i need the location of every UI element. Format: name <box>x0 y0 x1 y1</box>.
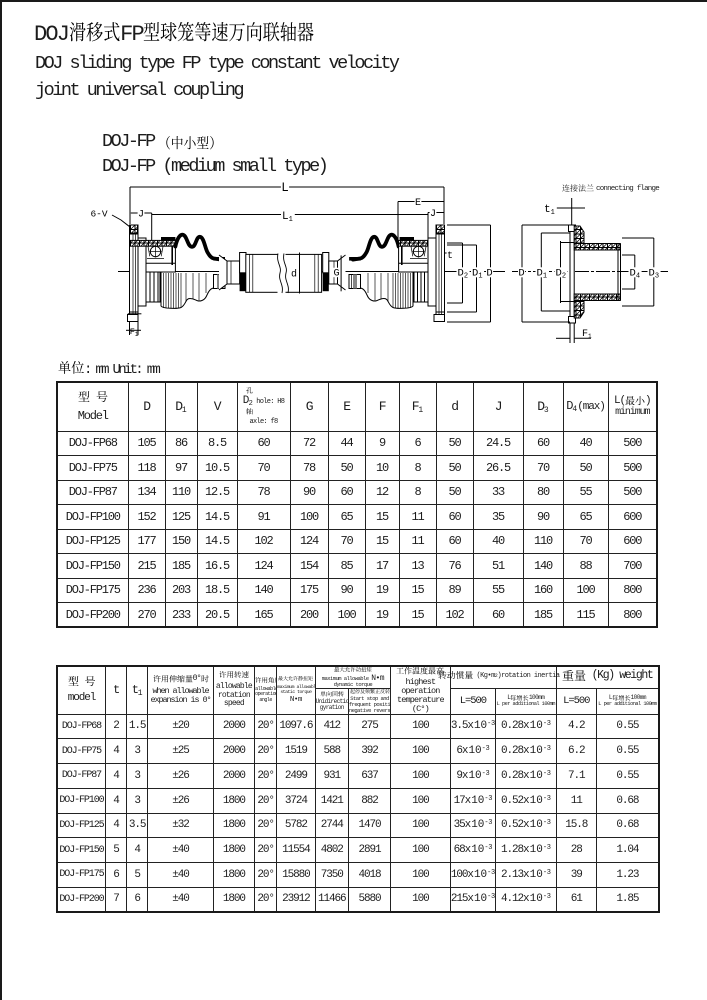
svg-text:t: t <box>447 251 453 262</box>
svg-text:D: D <box>518 268 524 280</box>
svg-text:J: J <box>138 210 144 221</box>
svg-text:G: G <box>333 269 339 280</box>
svg-text:E: E <box>415 198 421 209</box>
svg-text:6-V: 6-V <box>90 209 107 220</box>
svg-text:connecting flange: connecting flange <box>596 185 659 193</box>
svg-text:J: J <box>430 209 436 220</box>
svg-text:L: L <box>281 181 289 195</box>
svg-text:D: D <box>486 268 492 280</box>
svg-text:F1: F1 <box>582 329 592 340</box>
svg-text:d: d <box>291 269 297 281</box>
